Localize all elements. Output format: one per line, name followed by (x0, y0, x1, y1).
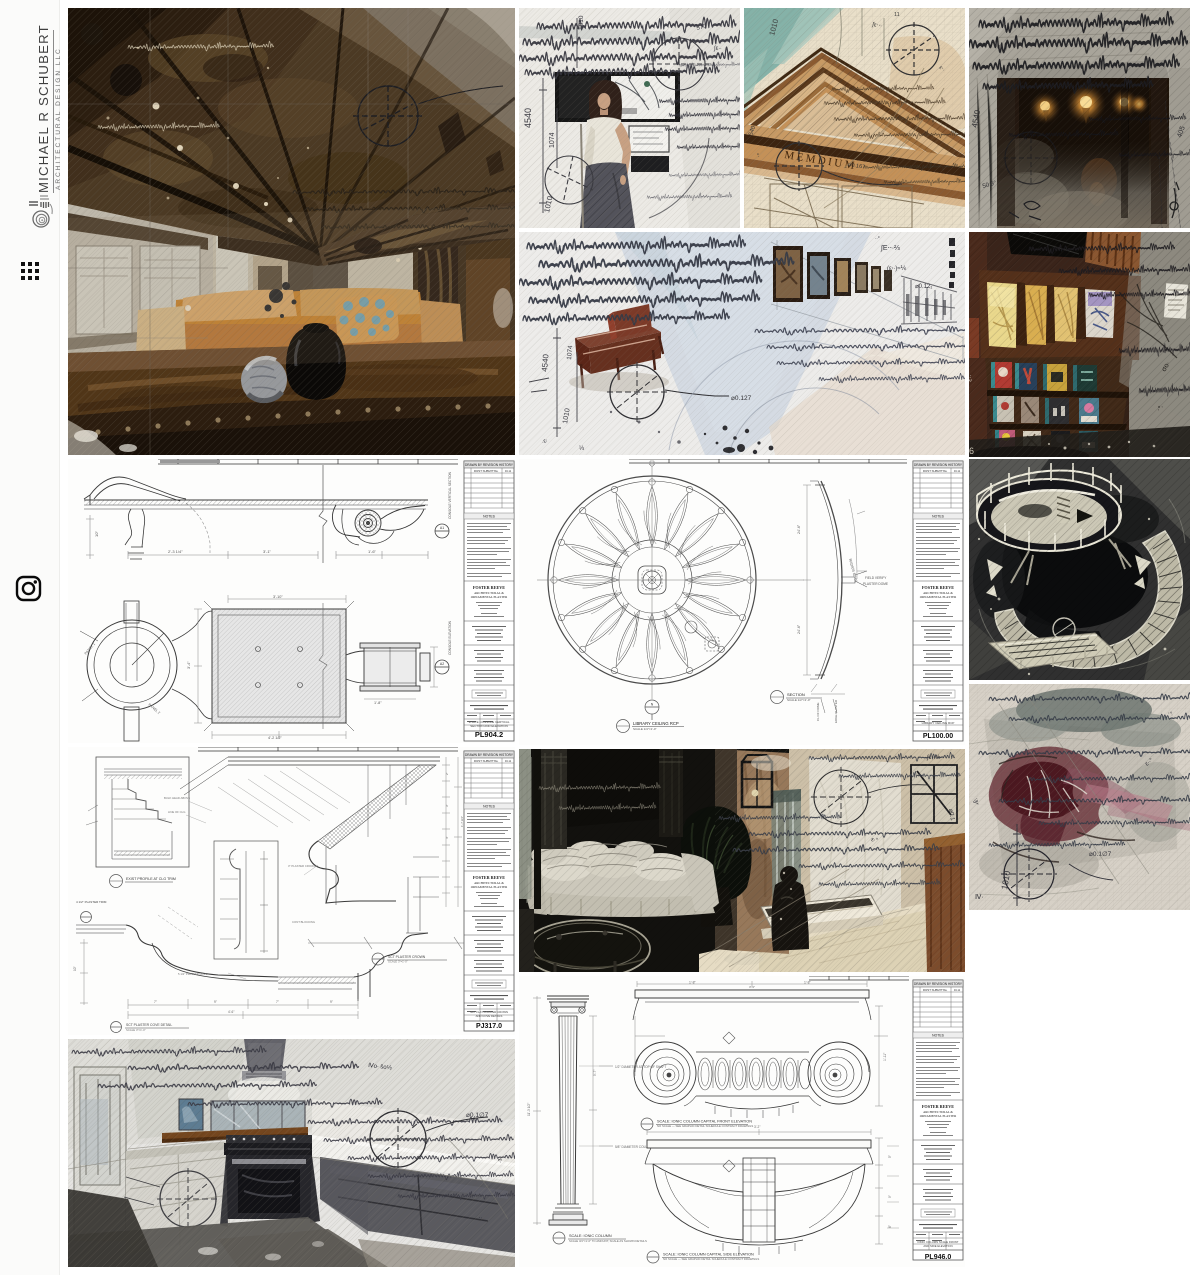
svg-text:LINE OF CLG: LINE OF CLG (168, 810, 185, 814)
svg-text:SECTION AND ELEVATION: SECTION AND ELEVATION (470, 724, 508, 728)
svg-text:9'-7": 9'-7" (593, 1070, 597, 1076)
svg-text:FIELD VERIFY: FIELD VERIFY (865, 576, 887, 580)
svg-text:3'-4": 3'-4" (749, 985, 755, 989)
svg-text:9": 9" (330, 1000, 333, 1004)
svg-text:EDGE PLASTER: EDGE PLASTER (834, 699, 838, 723)
svg-text:CL OF DOME: CL OF DOME (816, 702, 820, 721)
svg-text:SCALE 1/4"=1'-0": SCALE 1/4"=1'-0" (633, 727, 657, 731)
svg-text:3'-2": 3'-2" (754, 1125, 760, 1129)
svg-text:24'-6": 24'-6" (797, 524, 801, 534)
svg-text:1'-11": 1'-11" (883, 1052, 887, 1061)
svg-text:3" PLASTER CROWN: 3" PLASTER CROWN (288, 864, 316, 868)
svg-text:4'-6": 4'-6" (228, 1010, 234, 1014)
svg-text:1'-8": 1'-8" (689, 981, 697, 985)
svg-text:SCALE 1/2"=1'-0": SCALE 1/2"=1'-0" (787, 698, 811, 702)
svg-text:PL946.0: PL946.0 (925, 1254, 952, 1261)
svg-text:1'-8": 1'-8" (804, 981, 812, 985)
svg-text:A2: A2 (440, 662, 444, 666)
svg-text:PL904.2: PL904.2 (475, 730, 503, 739)
svg-text:4 1/2" PLASTER TRIM: 4 1/2" PLASTER TRIM (76, 900, 107, 904)
svg-text:BULK HEAD ABOVE: BULK HEAD ABOVE (164, 796, 190, 800)
svg-text:SCALE 3"=1'-0": SCALE 3"=1'-0" (126, 1028, 146, 1032)
svg-text:SCALE 3/4"=1'-0" TO AMOUNT; SC: SCALE 3/4"=1'-0" TO AMOUNT; SCALE AS SHO… (569, 1239, 647, 1243)
svg-text:PJ317.0: PJ317.0 (476, 1023, 502, 1030)
svg-text:10": 10" (94, 531, 99, 537)
svg-text:24'-6": 24'-6" (797, 624, 801, 634)
svg-text:5 1/2" PLASTER COVE: 5 1/2" PLASTER COVE (178, 972, 208, 976)
svg-text:1/2" DIAMETER AT TOP OF SHAFT: 1/2" DIAMETER AT TOP OF SHAFT (615, 1065, 666, 1069)
svg-text:LIBRARY CEILING RCP: LIBRARY CEILING RCP (922, 721, 955, 725)
svg-text:10": 10" (73, 966, 77, 971)
svg-text:CONT BLOCKING: CONT BLOCKING (292, 920, 315, 924)
svg-text:7": 7" (154, 1000, 157, 1004)
svg-text:EXIST PROFILE AT CLG TRIM: EXIST PROFILE AT CLG TRIM (126, 877, 176, 881)
svg-text:5": 5" (888, 1155, 892, 1158)
svg-text:CONSOLE VERTICAL SECTION: CONSOLE VERTICAL SECTION (448, 471, 452, 519)
svg-text:AND COVE DETAILS: AND COVE DETAILS (476, 1014, 503, 1018)
svg-text:3": 3" (445, 804, 449, 807)
svg-text:3'-1": 3'-1" (263, 549, 272, 554)
svg-text:4": 4" (445, 836, 449, 839)
svg-text:2": 2" (445, 772, 449, 775)
svg-text:SCT PLASTER CROWN: SCT PLASTER CROWN (388, 955, 426, 959)
svg-text:11'-3 1/2": 11'-3 1/2" (527, 1103, 531, 1116)
svg-text:SECTION: SECTION (787, 692, 805, 697)
svg-text:1'-8": 1'-8" (374, 701, 382, 705)
svg-text:SCALE: IONIC COLUMN: SCALE: IONIC COLUMN (569, 1234, 612, 1238)
svg-text:LIBRARY CEILING RCP: LIBRARY CEILING RCP (633, 721, 679, 726)
svg-text:CONSOLE ELEVATION: CONSOLE ELEVATION (448, 620, 452, 655)
svg-text:7": 7" (276, 1000, 279, 1004)
svg-text:6": 6" (888, 1225, 892, 1228)
svg-text:1'-7 3/4": 1'-7 3/4" (460, 816, 464, 827)
svg-text:4'-2 1/2": 4'-2 1/2" (268, 736, 283, 740)
svg-text:9": 9" (214, 1000, 217, 1004)
svg-text:SCT PLASTER COVE DETAIL: SCT PLASTER COVE DETAIL (126, 1023, 172, 1027)
svg-text:PL100.00: PL100.00 (923, 733, 953, 740)
svg-text:9": 9" (888, 1195, 892, 1198)
svg-text:A1: A1 (440, 526, 444, 530)
svg-text:PLASTER DOME: PLASTER DOME (863, 582, 888, 586)
svg-text:1'-6": 1'-6" (368, 549, 377, 554)
svg-text:SCALE: IONIC COLUMN CAPITAL SI: SCALE: IONIC COLUMN CAPITAL SIDE ELEVATI… (663, 1253, 754, 1257)
svg-text:3'-10": 3'-10" (273, 595, 283, 599)
svg-text:SCALE: IONIC COLUMN CAPITAL FR: SCALE: IONIC COLUMN CAPITAL FRONT ELEVAT… (657, 1120, 752, 1124)
svg-text:AND SIDE ELEVATION: AND SIDE ELEVATION (923, 1244, 952, 1248)
svg-text:3'-4": 3'-4" (187, 661, 191, 669)
svg-text:2'-3 1/4": 2'-3 1/4" (168, 549, 183, 554)
